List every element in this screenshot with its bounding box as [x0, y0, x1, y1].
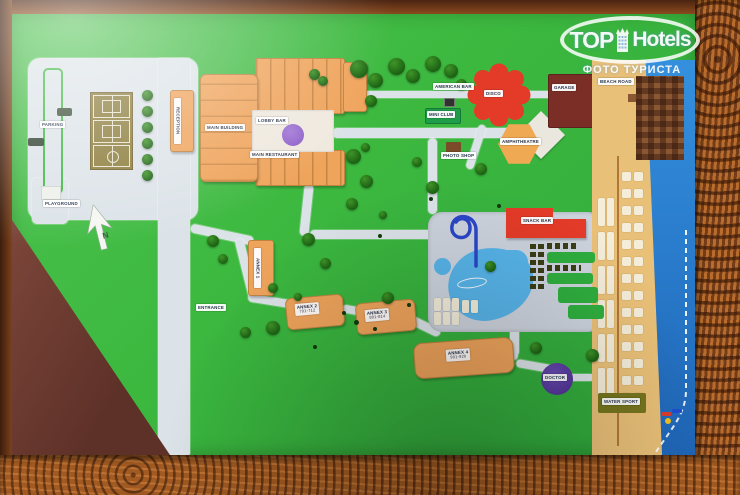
tree [379, 211, 387, 219]
mini-club-label: MINI CLUB [427, 111, 455, 118]
beach-lounger [607, 334, 614, 362]
tree [218, 254, 228, 264]
tree [388, 58, 405, 75]
jet-ski-icon [672, 409, 682, 413]
tree [425, 56, 441, 72]
watermark-subtitle: ФОТО ТУРИСТА [556, 64, 708, 76]
beach-lounger [634, 376, 643, 385]
car-icon [28, 138, 44, 146]
basketball-court [93, 145, 130, 167]
tree [240, 327, 251, 338]
path [299, 184, 313, 237]
beach-lounger [634, 223, 643, 232]
path [190, 223, 254, 245]
lobby-bar-label: LOBBY BAR [256, 117, 288, 124]
disco-label: DISCO [484, 90, 503, 97]
lawn [558, 287, 598, 303]
tree [302, 233, 315, 246]
beach-lounger [622, 240, 631, 249]
lawn [568, 305, 604, 319]
beach-lounger [598, 232, 605, 260]
watermark-oval: TOP Hotels [560, 16, 700, 64]
playground-structure [41, 186, 61, 200]
main-restaurant-label: MAIN RESTAURANT [250, 151, 299, 158]
water-sport-label: WATER SPORT [602, 398, 640, 405]
beach-lounger [607, 368, 614, 396]
beach-lounger [622, 206, 631, 215]
main-building-north-wings [255, 58, 345, 114]
beach-lounger [607, 232, 614, 260]
garage-label: GARAGE [552, 84, 576, 91]
beach-lounger [622, 274, 631, 283]
entrance-label: ENTRANCE [196, 304, 226, 311]
pier [636, 76, 684, 160]
frame-left [0, 0, 12, 495]
beach-lounger [622, 325, 631, 334]
beach-lounger [634, 257, 643, 266]
beach-lounger [634, 308, 643, 317]
snack-bar-label: SNACK BAR [521, 217, 553, 224]
beach-lounger [622, 223, 631, 232]
photo-shop-building [446, 142, 461, 152]
tree [320, 258, 331, 269]
annex-4-label: ANNEX 4 901-920 [446, 348, 471, 362]
beach-lounger [622, 189, 631, 198]
sunbed [434, 312, 441, 325]
path [310, 230, 432, 239]
tree [207, 235, 219, 247]
beach-lounger [622, 257, 631, 266]
tree [485, 261, 496, 272]
beach-lounger [607, 266, 614, 294]
annex-1-label: ANNEX 1 [254, 248, 261, 288]
reception-label: RECEPTION [174, 98, 181, 144]
annex-3-label: ANNEX 3 801-814 [365, 308, 390, 322]
sunbed [452, 298, 459, 311]
playground-label: PLAYGROUND [43, 200, 80, 207]
beach-lounger [607, 198, 614, 226]
lawn [547, 252, 595, 263]
beach-lounger [607, 300, 614, 328]
tree [346, 198, 358, 210]
beach-lounger [634, 291, 643, 300]
beach-lounger [622, 359, 631, 368]
tennis-court [93, 95, 130, 118]
tree [475, 163, 487, 175]
sunbed [471, 300, 478, 313]
tree [426, 181, 439, 194]
tree [412, 157, 422, 167]
sunbed [434, 298, 441, 311]
tree [142, 170, 153, 181]
beach-lounger [598, 266, 605, 294]
tophotels-watermark: TOP Hotels ФОТО ТУРИСТА [556, 12, 708, 84]
doctor-label: DOCTOR [543, 374, 567, 381]
bush [342, 311, 346, 315]
beach-lounger [622, 376, 631, 385]
tree [346, 149, 361, 164]
parking-lane [43, 68, 63, 194]
bush [429, 197, 433, 201]
car-icon [57, 108, 72, 116]
path [428, 138, 437, 214]
beach-lounger [634, 172, 643, 181]
tennis-court [93, 120, 130, 143]
beach-lounger [634, 342, 643, 351]
beach-lounger [634, 325, 643, 334]
sunbed [443, 298, 450, 311]
tree [142, 106, 153, 117]
tree [361, 143, 370, 152]
tree [268, 283, 278, 293]
tree [142, 154, 153, 165]
annex-2-label: ANNEX 2 701-712 [295, 302, 320, 316]
parking-label: PARKING [40, 121, 65, 128]
watermark-hotels-text: Hotels [632, 28, 690, 52]
beach-lounger [622, 291, 631, 300]
tree [530, 342, 542, 354]
beach-lounger [598, 198, 605, 226]
beach-lounger [634, 206, 643, 215]
tree [586, 349, 599, 362]
main-building-label: MAIN BUILDING [205, 124, 245, 131]
courtyard-fountain [282, 124, 304, 146]
bar-icon [444, 98, 455, 107]
frame-bottom [0, 455, 740, 495]
tree [365, 95, 377, 107]
bush [378, 234, 382, 238]
bush [373, 327, 377, 331]
watermark-top-text: TOP [569, 27, 613, 54]
american-bar-label: AMERICAN BAR [433, 83, 474, 90]
tree [406, 69, 420, 83]
beach-lounger [634, 189, 643, 198]
hotel-building-icon [614, 27, 631, 53]
tree [266, 321, 280, 335]
amphitheatre-label: AMPHITHEATRE [500, 138, 541, 145]
sports-courts [90, 92, 133, 170]
tree [382, 292, 394, 304]
tree [318, 76, 328, 86]
tree [142, 122, 153, 133]
photo-shop-label: PHOTO SHOP [441, 152, 476, 159]
tree [350, 60, 368, 78]
beach-lounger [598, 334, 605, 362]
bush [407, 303, 411, 307]
bush [313, 345, 317, 349]
sunbed [452, 312, 459, 325]
tree [360, 175, 373, 188]
bush [354, 320, 359, 325]
beach-lounger [634, 359, 643, 368]
tree [368, 73, 383, 88]
bush [497, 204, 501, 208]
beach-lounger [622, 342, 631, 351]
tree [142, 90, 153, 101]
beach-area: BEACH ROAD WATER SPORT [592, 60, 695, 455]
buoy-icon [665, 418, 671, 424]
beach-lounger [598, 368, 605, 396]
beach-lounger [622, 172, 631, 181]
jet-ski-icon [662, 412, 671, 416]
beach-lounger [634, 274, 643, 283]
beach-lounger [634, 240, 643, 249]
sunbed [462, 300, 469, 313]
lawn [547, 273, 593, 284]
tree [142, 138, 153, 149]
north-letter: N [101, 230, 109, 241]
tree [444, 64, 458, 78]
tree [294, 293, 302, 301]
framed-resort-map-photo: PARKING PLAYGROUND N [0, 0, 740, 495]
beach-lounger [622, 308, 631, 317]
sunbed [443, 312, 450, 325]
